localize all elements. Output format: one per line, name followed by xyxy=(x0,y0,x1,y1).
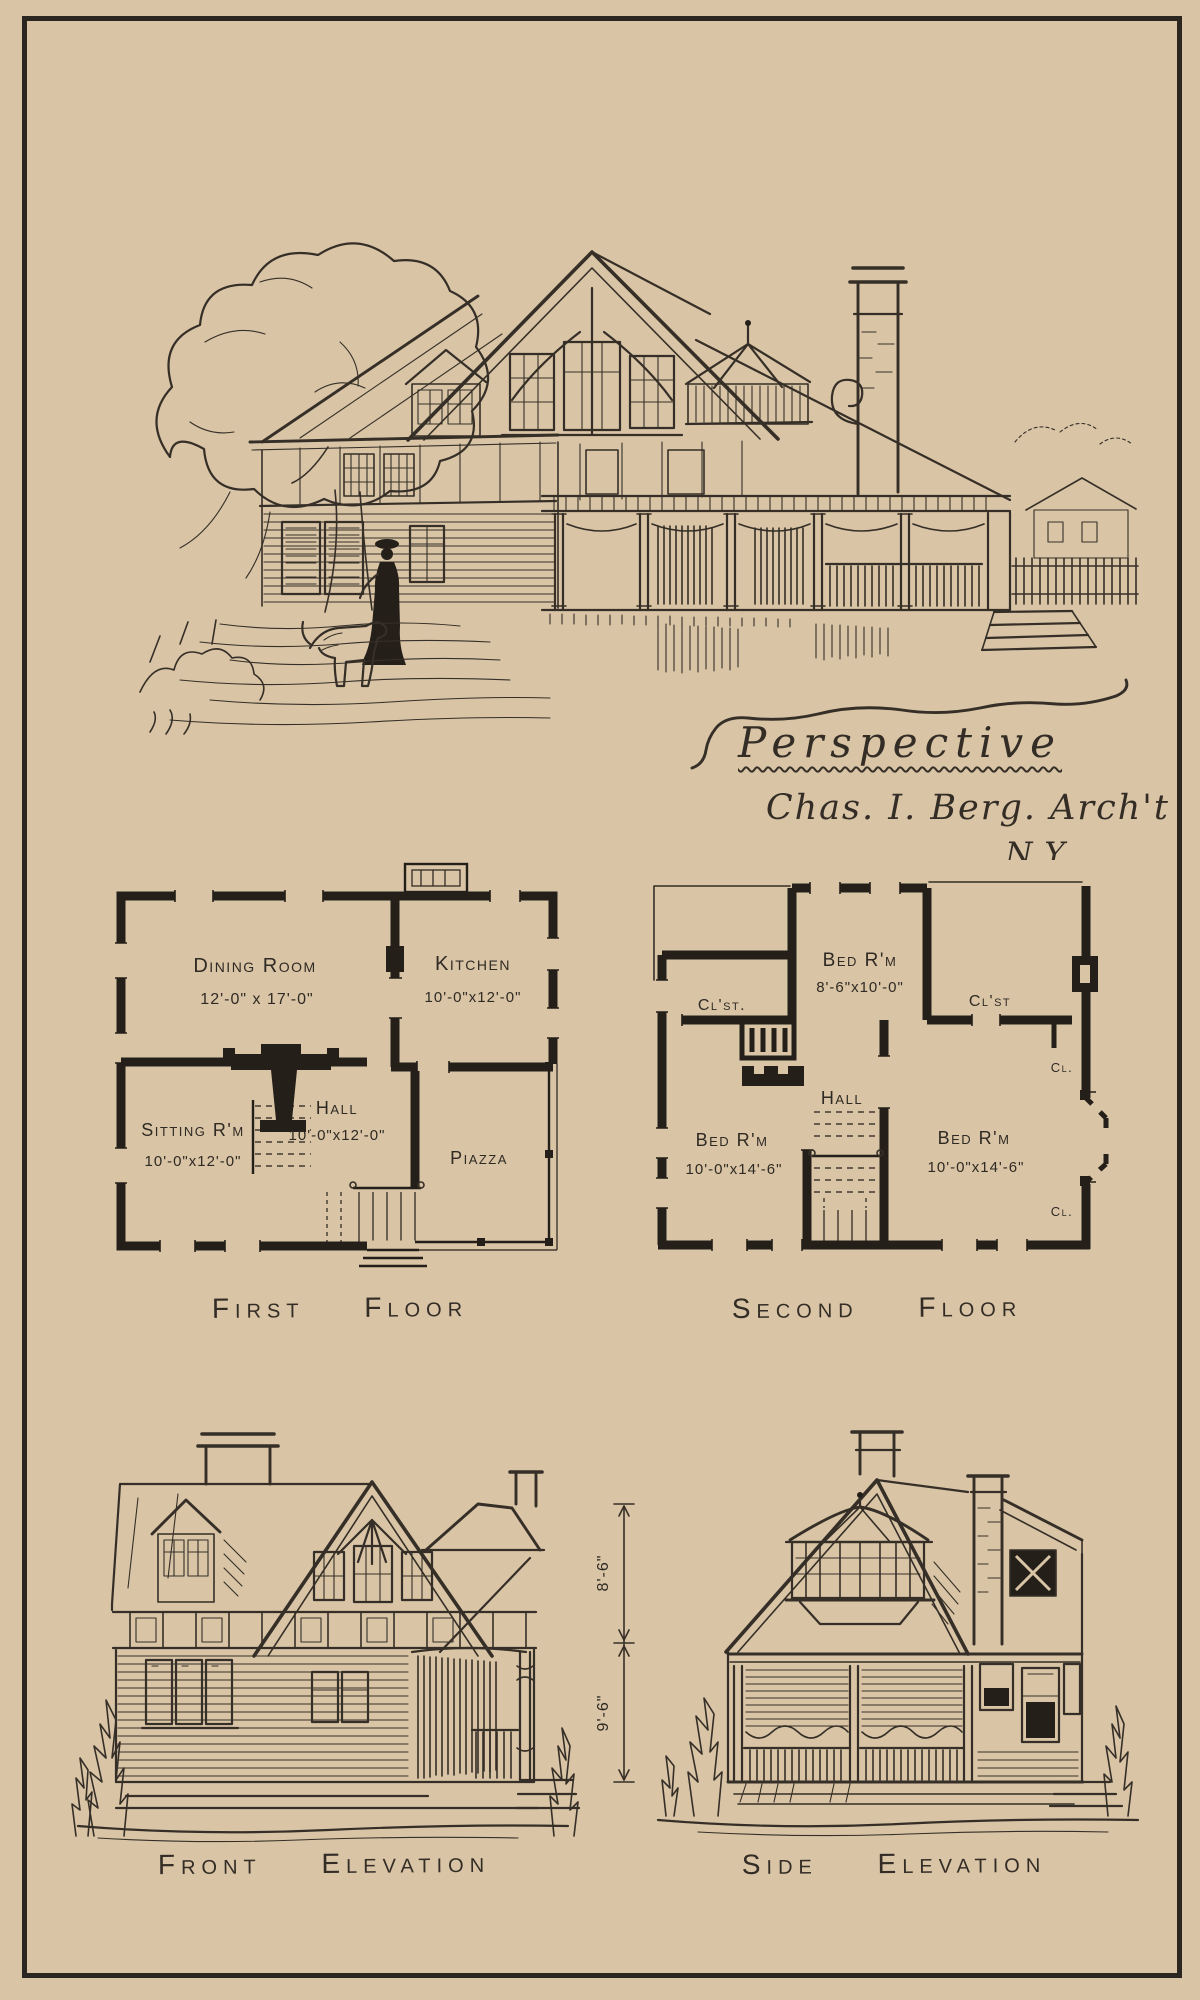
room-dims-bed-top: 8'-6"x10'-0" xyxy=(816,979,904,996)
room-label-piazza: Piazza xyxy=(450,1148,508,1168)
ridge-chimney xyxy=(852,1432,902,1476)
room-label-hall: Hall xyxy=(821,1088,863,1108)
front-elevation-drawing xyxy=(68,1428,580,1848)
room-dims-hall: 10'-0"x12'-0" xyxy=(289,1127,386,1144)
dimension-line xyxy=(614,1504,634,1782)
background-cottage xyxy=(1015,423,1136,558)
room-dims-bed-right: 10'-0"x14'-6" xyxy=(928,1159,1025,1176)
side-elevation-drawing xyxy=(638,1412,1150,1842)
chimney-mass xyxy=(742,1066,804,1086)
room-dims-dining: 12'-0" x 17'-0" xyxy=(200,991,313,1008)
house-left-wing xyxy=(250,296,558,608)
second-floor-plan-drawing: Bed R'm 8'-6"x10'-0" Cl'st. Cl'st Hall B… xyxy=(642,860,1112,1262)
first-floor-plan-drawing: Dining Room 12'-0" x 17'-0" Kitchen 10'-… xyxy=(105,858,575,1270)
room-label-closet-upper: Cl. xyxy=(1051,1060,1074,1075)
rear-roof xyxy=(1000,1500,1082,1596)
dimension-upper: 8'-6" xyxy=(595,1555,612,1592)
picket-fence xyxy=(1012,558,1138,604)
evergreens xyxy=(662,1698,1132,1816)
roof-and-cupola xyxy=(592,252,1010,500)
chimney xyxy=(968,1476,1008,1644)
perspective-label: Perspective xyxy=(690,718,1110,767)
dimension-lower: 9'-6" xyxy=(595,1695,612,1732)
room-dims-bed-left: 10'-0"x14'-6" xyxy=(686,1161,783,1178)
room-label-bed-left: Bed R'm xyxy=(696,1130,769,1150)
room-label-sitting: Sitting R'm xyxy=(141,1120,244,1140)
front-elevation-caption: Front Elevation xyxy=(68,1846,580,1882)
room-label-closet-right: Cl'st xyxy=(969,993,1011,1010)
tree xyxy=(156,243,488,612)
bush-left xyxy=(140,620,264,700)
room-dims-sitting: 10'-0"x12'-0" xyxy=(145,1153,242,1170)
chimney xyxy=(832,268,906,494)
porch xyxy=(542,496,1096,650)
ground xyxy=(78,1782,568,1842)
room-label-hall: Hall xyxy=(316,1098,358,1118)
chimney xyxy=(198,1434,278,1484)
room-label-closet-left: Cl'st. xyxy=(698,997,746,1014)
room-label-closet-lower: Cl. xyxy=(1051,1204,1074,1219)
first-floor-caption: First Floor xyxy=(105,1290,575,1325)
dormer xyxy=(152,1500,246,1602)
left-roof xyxy=(112,1484,372,1610)
room-label-bed-right: Bed R'm xyxy=(938,1128,1011,1148)
room-label-kitchen: Kitchen xyxy=(435,953,511,975)
right-wall-window xyxy=(1072,956,1098,992)
side-elevation-caption: Side Elevation xyxy=(638,1846,1150,1882)
room-label-bed-top: Bed R'm xyxy=(823,950,898,971)
second-floor-caption: Second Floor xyxy=(642,1290,1112,1325)
porch xyxy=(734,1666,972,1780)
plate-page: Perspective Chas. I. Berg. Arch't N.Y. xyxy=(0,0,1200,2000)
ground xyxy=(658,1782,1138,1836)
room-dims-kitchen: 10'-0"x12'-0" xyxy=(425,989,522,1006)
room-label-dining: Dining Room xyxy=(193,955,316,977)
main-gable xyxy=(254,1482,492,1656)
architect-credit: Chas. I. Berg. Arch't xyxy=(730,788,1170,828)
